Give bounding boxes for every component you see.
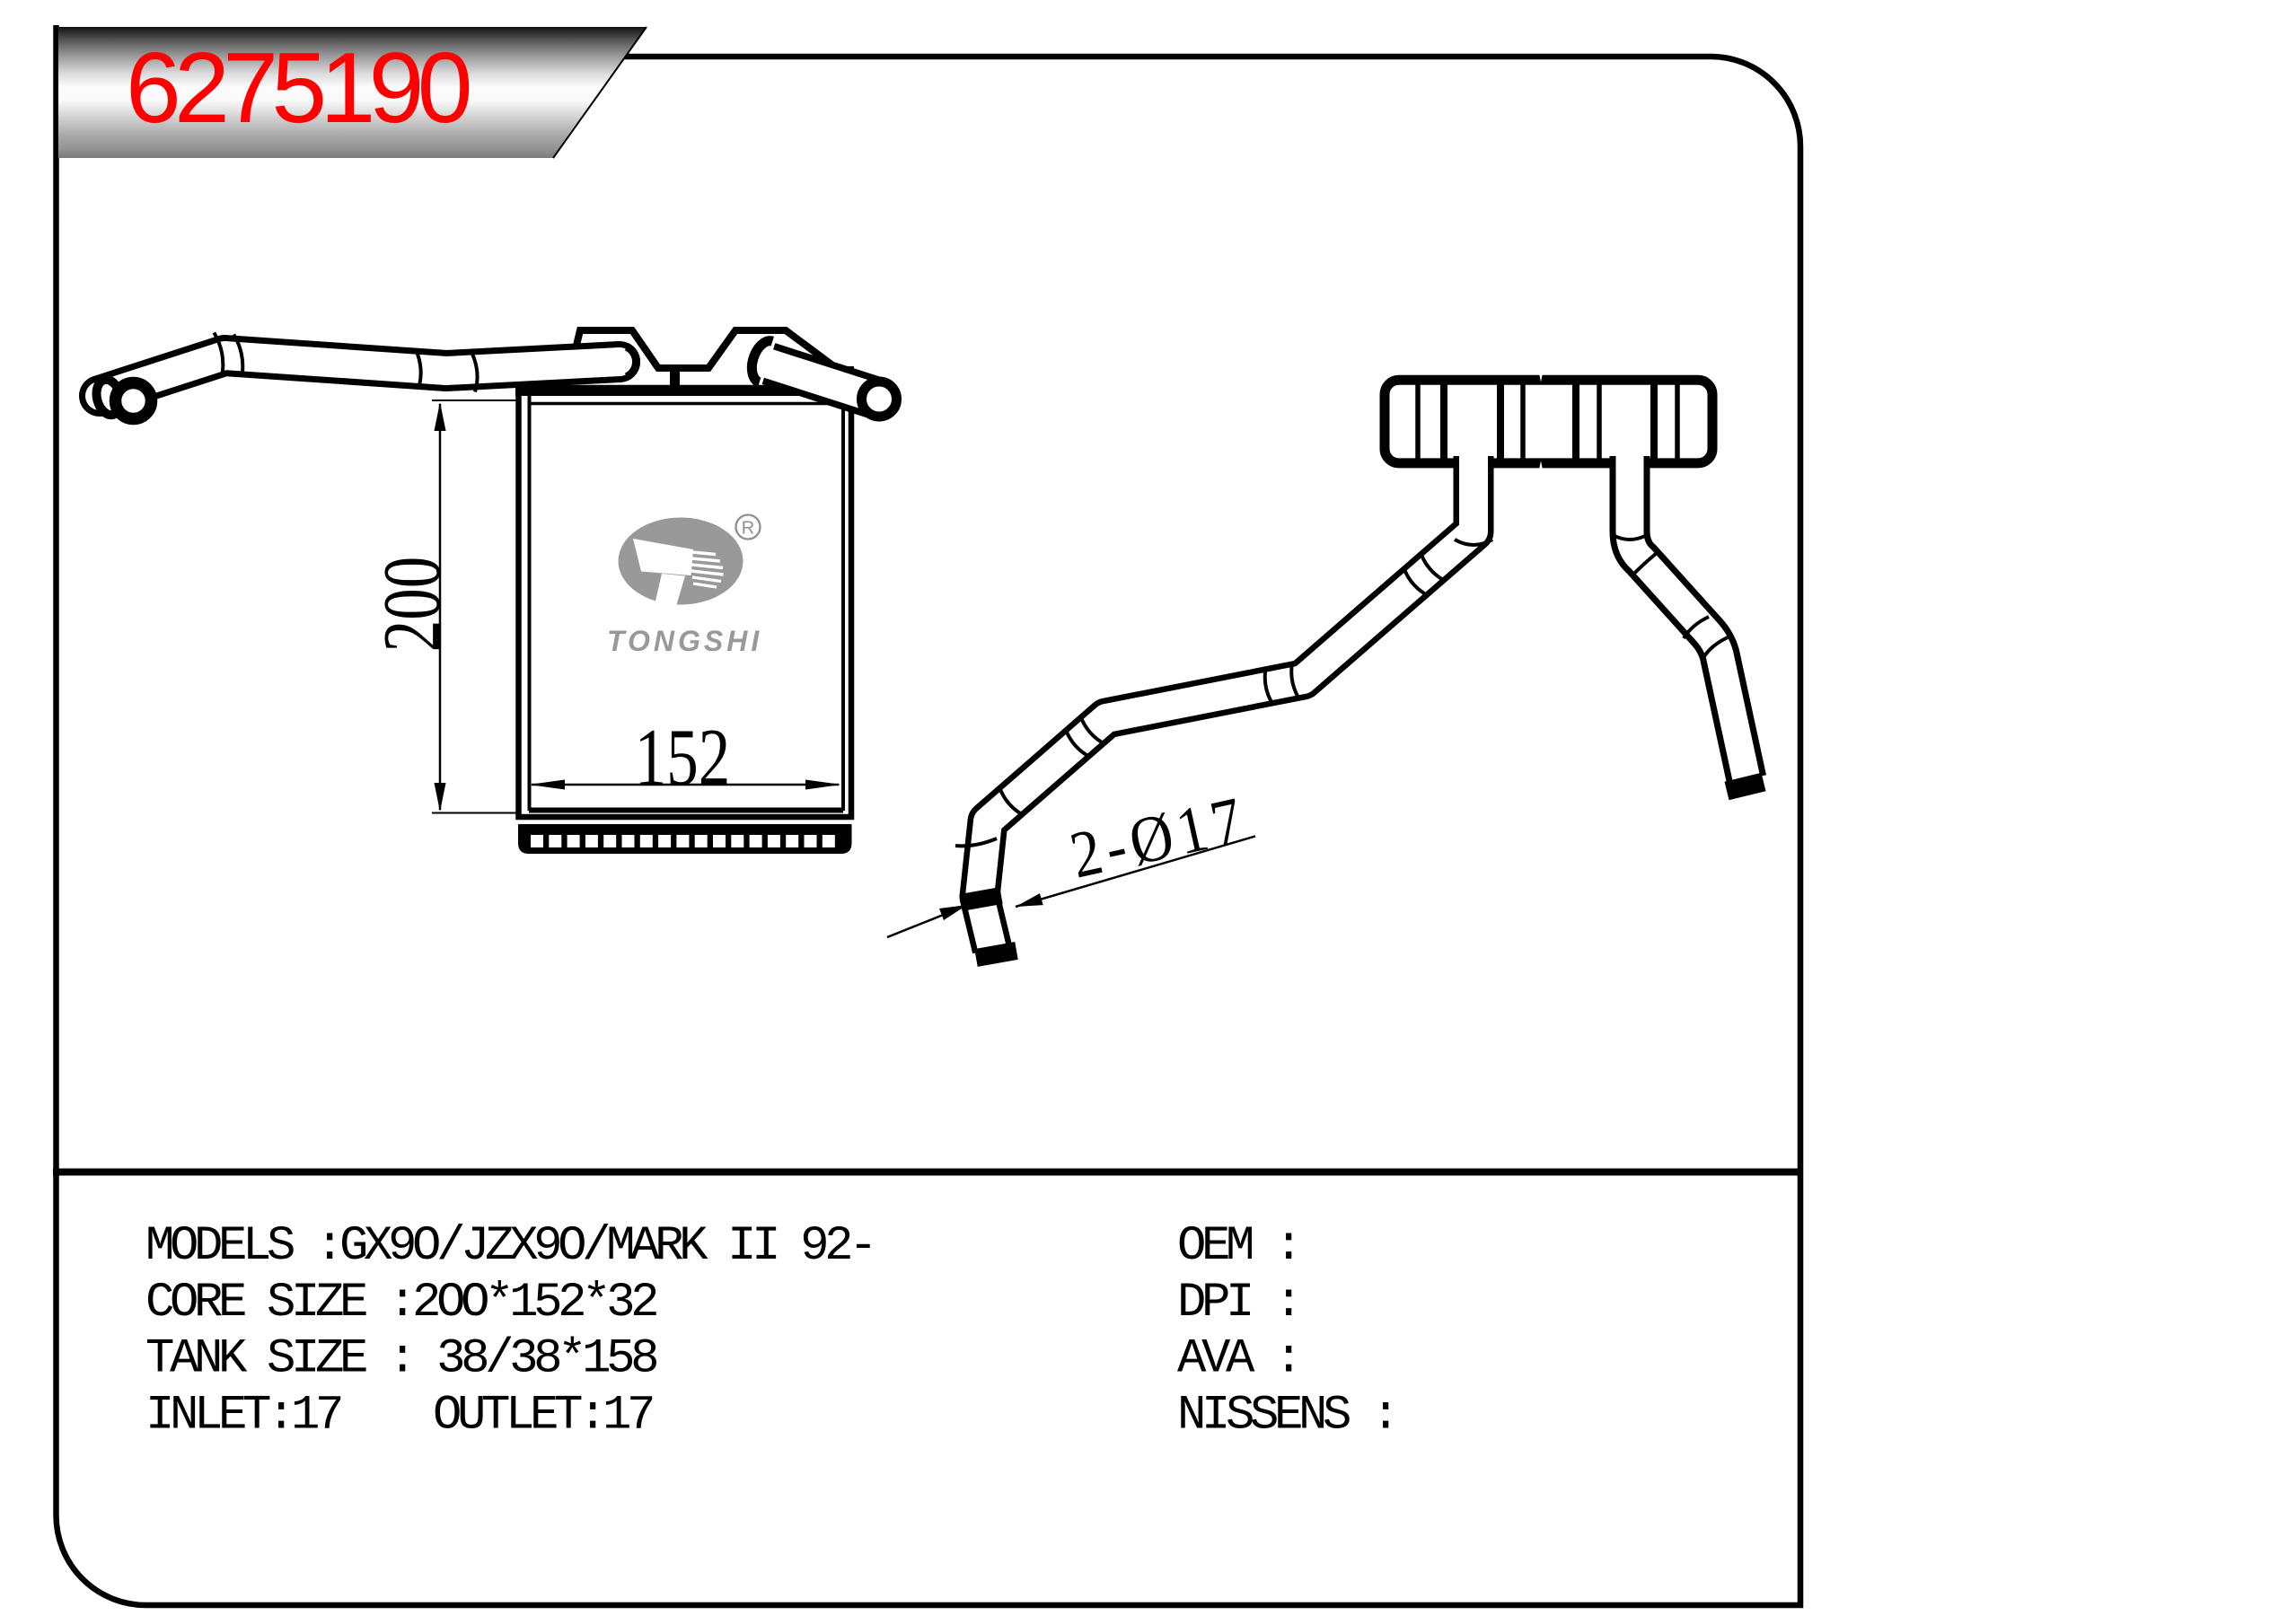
svg-text:OEM :: OEM : — [1177, 1219, 1298, 1274]
svg-text:INLET:17: INLET:17 — [145, 1388, 341, 1443]
svg-text:R: R — [742, 519, 754, 539]
svg-text:TONGSHI: TONGSHI — [607, 625, 762, 657]
svg-text:200: 200 — [366, 557, 457, 652]
svg-text:MODELS :GX9O/JZX9O/MARK II 92-: MODELS :GX9O/JZX9O/MARK II 92- — [145, 1219, 873, 1274]
svg-text:NISSENS :: NISSENS : — [1177, 1388, 1395, 1443]
svg-text:OUTLET:17: OUTLET:17 — [433, 1388, 653, 1443]
svg-text:152: 152 — [635, 712, 730, 803]
svg-text:TANK SIZE : 38/38*158: TANK SIZE : 38/38*158 — [145, 1331, 656, 1386]
svg-text:CORE SIZE :2OO*152*32: CORE SIZE :2OO*152*32 — [145, 1276, 656, 1330]
svg-text:DPI :: DPI : — [1177, 1276, 1298, 1330]
svg-text:AVA :: AVA : — [1177, 1331, 1298, 1386]
svg-text:6275190: 6275190 — [126, 32, 470, 144]
